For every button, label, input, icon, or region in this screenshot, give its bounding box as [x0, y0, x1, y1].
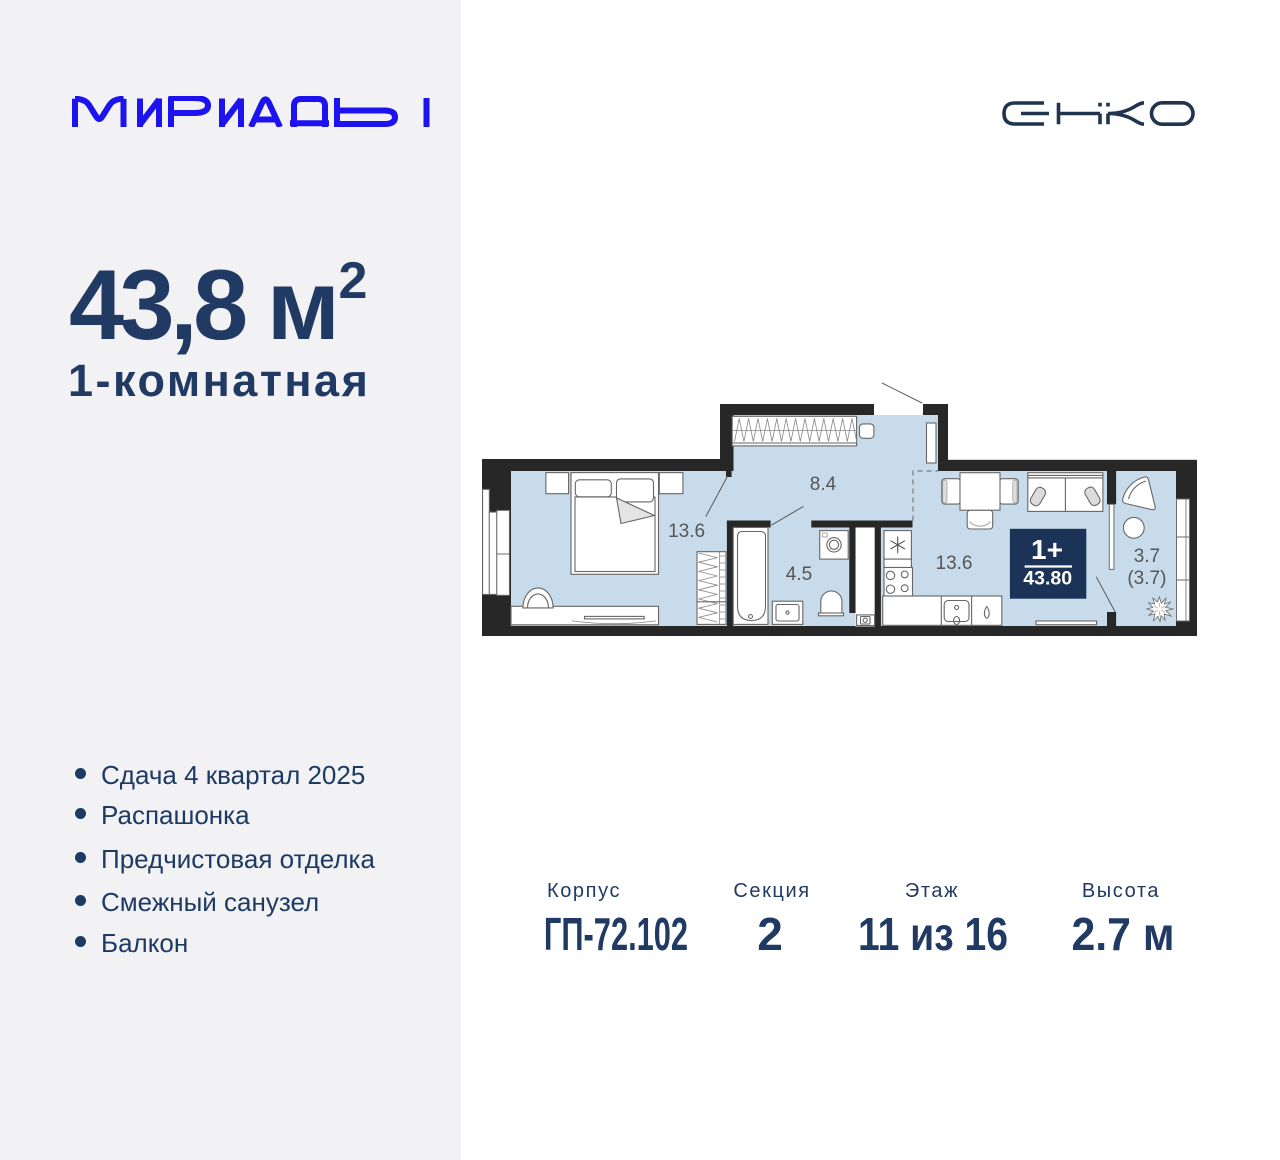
svg-text:43.80: 43.80	[1023, 568, 1072, 590]
svg-text:4.5: 4.5	[786, 564, 812, 585]
svg-text:1+: 1+	[1031, 534, 1063, 565]
svg-text:13.6: 13.6	[668, 521, 705, 542]
svg-text:3.7: 3.7	[1134, 546, 1160, 567]
svg-text:8.4: 8.4	[810, 474, 837, 495]
svg-text:(3.7): (3.7)	[1127, 568, 1166, 589]
svg-text:13.6: 13.6	[936, 553, 973, 574]
